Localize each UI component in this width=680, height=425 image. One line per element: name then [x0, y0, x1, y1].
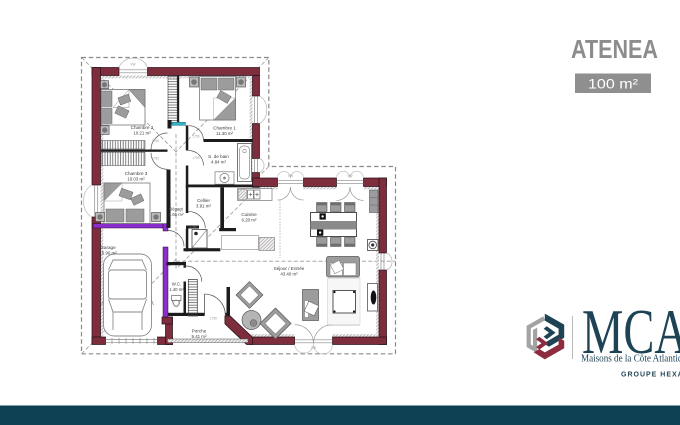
svg-text:Dégagt: Dégagt: [169, 206, 183, 211]
svg-text:Séjour / Entrée: Séjour / Entrée: [274, 266, 305, 271]
svg-text:1750: 1750: [192, 156, 199, 160]
svg-text:1750: 1750: [210, 316, 217, 320]
svg-text:Cuisine: Cuisine: [241, 212, 257, 217]
svg-text:S. de bain: S. de bain: [208, 154, 229, 159]
svg-text:VW: VW: [288, 174, 293, 178]
svg-text:VW: VW: [347, 174, 352, 178]
svg-text:GROUPE HEXAOM: GROUPE HEXAOM: [621, 372, 680, 379]
svg-text:Cellier: Cellier: [197, 198, 210, 203]
svg-text:1750: 1750: [189, 224, 196, 228]
svg-text:100 m²: 100 m²: [588, 77, 639, 92]
svg-text:W.C.: W.C.: [172, 282, 182, 287]
svg-text:1750: 1750: [152, 139, 159, 143]
svg-text:15.96 m²: 15.96 m²: [99, 251, 117, 256]
svg-text:4.84 m²: 4.84 m²: [211, 160, 226, 165]
svg-text:11.30 m²: 11.30 m²: [216, 131, 234, 136]
svg-text:10.21 m²: 10.21 m²: [133, 131, 151, 136]
svg-text:Maisons de la Côte Atlantique: Maisons de la Côte Atlantique: [581, 352, 680, 364]
svg-text:Chambre 1: Chambre 1: [213, 126, 236, 131]
svg-text:ATENEA: ATENEA: [571, 34, 658, 64]
svg-text:43.40 m²: 43.40 m²: [280, 272, 298, 277]
svg-text:6.20 m²: 6.20 m²: [242, 218, 257, 223]
svg-text:Chambre 2: Chambre 2: [131, 125, 154, 130]
svg-text:VW: VW: [130, 63, 135, 67]
svg-text:6.65 m²: 6.65 m²: [169, 212, 184, 217]
svg-text:9.41 m²: 9.41 m²: [192, 334, 207, 339]
svg-text:3.91 m²: 3.91 m²: [196, 204, 211, 209]
svg-text:VW: VW: [311, 346, 316, 350]
svg-text:Garage: Garage: [100, 245, 116, 250]
svg-text:Porche: Porche: [192, 329, 207, 334]
svg-text:10.03 m²: 10.03 m²: [127, 177, 145, 182]
svg-text:1750: 1750: [192, 134, 199, 138]
svg-text:1750: 1750: [152, 156, 159, 160]
svg-text:Chambre 3: Chambre 3: [125, 171, 148, 176]
svg-text:1.40 m²: 1.40 m²: [169, 287, 184, 292]
